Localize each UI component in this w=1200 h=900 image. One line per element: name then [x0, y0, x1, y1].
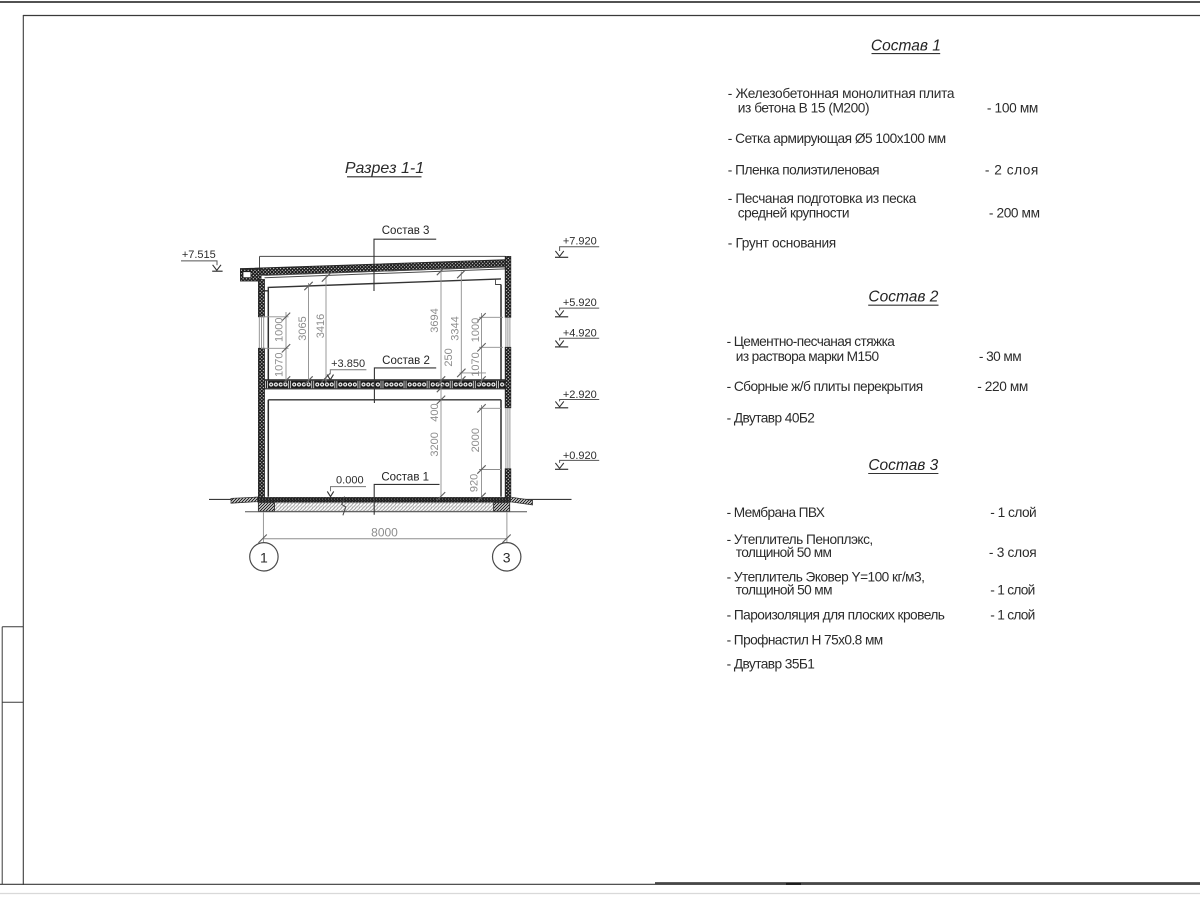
- svg-text:1000: 1000: [273, 318, 285, 342]
- svg-text:- Профнастил Н 75х0.8 мм: - Профнастил Н 75х0.8 мм: [727, 633, 884, 648]
- svg-text:250: 250: [443, 348, 455, 366]
- svg-text:- Цементно-песчаная стяжка: - Цементно-песчаная стяжка: [727, 334, 896, 349]
- svg-text:- 200 мм: - 200 мм: [989, 205, 1040, 220]
- svg-text:3344: 3344: [450, 316, 462, 340]
- svg-text:+3.850: +3.850: [331, 358, 365, 370]
- svg-text:- 1 слой: - 1 слой: [990, 582, 1035, 597]
- svg-text:- Сборные ж/б плиты перекрытия: - Сборные ж/б плиты перекрытия: [727, 379, 924, 394]
- svg-text:3065: 3065: [297, 316, 309, 340]
- svg-text:Состав 1: Состав 1: [381, 472, 429, 484]
- svg-text:Состав 2: Состав 2: [382, 355, 430, 367]
- svg-text:- Грунт основания: - Грунт основания: [728, 236, 836, 251]
- svg-text:- 1 слой: - 1 слой: [990, 607, 1035, 622]
- svg-text:+5.920: +5.920: [563, 297, 597, 309]
- svg-text:Состав 3: Состав 3: [382, 225, 430, 237]
- svg-text:- Песчаная подготовка из песка: - Песчаная подготовка из песка: [728, 191, 917, 206]
- svg-text:+7.515: +7.515: [182, 249, 216, 261]
- svg-text:- 2 слоя: - 2 слоя: [985, 163, 1038, 178]
- svg-text:Состав 3: Состав 3: [868, 457, 938, 474]
- svg-text:1000: 1000: [470, 318, 482, 342]
- svg-text:средней крупности: средней крупности: [738, 205, 850, 220]
- svg-text:- Двутавр 40Б2: - Двутавр 40Б2: [727, 411, 815, 426]
- svg-text:400: 400: [429, 403, 441, 421]
- svg-text:1070: 1070: [273, 353, 285, 377]
- svg-text:+7.920: +7.920: [563, 236, 597, 248]
- svg-text:8000: 8000: [371, 525, 398, 539]
- svg-text:1: 1: [260, 550, 268, 566]
- svg-text:0.000: 0.000: [336, 474, 364, 486]
- svg-text:из раствора марки М150: из раствора марки М150: [736, 349, 880, 364]
- svg-text:толщиной 50 мм: толщиной 50 мм: [736, 582, 833, 597]
- svg-text:3: 3: [503, 550, 511, 566]
- svg-text:- 1 слой: - 1 слой: [990, 505, 1036, 520]
- svg-text:- Мембрана ПВХ: - Мембрана ПВХ: [727, 505, 825, 520]
- svg-text:- Сетка армирующая Ø5 100х100: - Сетка армирующая Ø5 100х100 мм: [728, 131, 946, 146]
- svg-text:толщиной 50 мм: толщиной 50 мм: [736, 545, 832, 560]
- svg-text:Состав 2: Состав 2: [868, 289, 938, 306]
- svg-text:2000: 2000: [470, 428, 482, 452]
- svg-text:920: 920: [469, 474, 481, 492]
- svg-text:- Пароизоляция для плоских кро: - Пароизоляция для плоских кровель: [727, 607, 945, 622]
- svg-text:3200: 3200: [429, 432, 441, 456]
- svg-text:- Пленка полиэтиленовая: - Пленка полиэтиленовая: [728, 163, 880, 178]
- svg-text:- 220 мм: - 220 мм: [977, 379, 1028, 394]
- svg-text:- Двутавр 35Б1: - Двутавр 35Б1: [727, 657, 815, 672]
- svg-text:1070: 1070: [470, 352, 482, 376]
- svg-text:Разрез 1-1: Разрез 1-1: [345, 160, 424, 177]
- svg-text:из бетона В 15 (М200): из бетона В 15 (М200): [738, 100, 870, 115]
- svg-text:- 3 слоя: - 3 слоя: [989, 545, 1037, 560]
- svg-text:- 30 мм: - 30 мм: [979, 349, 1022, 364]
- svg-text:3416: 3416: [315, 314, 327, 338]
- svg-text:3694: 3694: [429, 308, 441, 332]
- svg-text:Состав 1: Состав 1: [871, 38, 941, 55]
- svg-text:- Железобетонная монолитная п: - Железобетонная монолитная плита: [728, 86, 955, 101]
- svg-text:- 100 мм: - 100 мм: [987, 100, 1038, 115]
